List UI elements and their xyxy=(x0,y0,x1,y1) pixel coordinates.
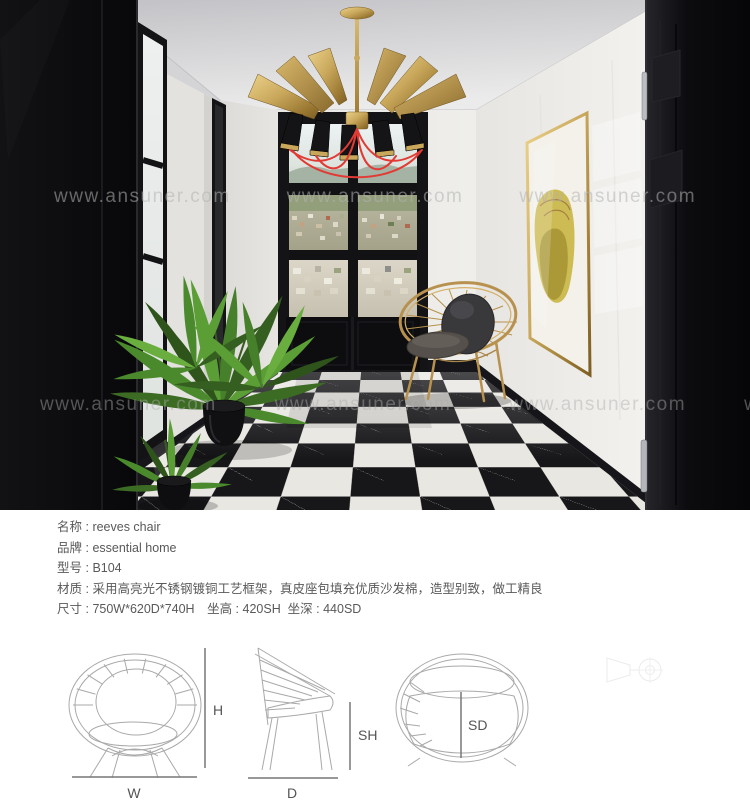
field-value: 750W*620D*740H 坐高 : 420SH 坐深 : 440SD xyxy=(92,602,361,616)
wall-art xyxy=(527,113,590,375)
depth-label: D xyxy=(287,785,297,801)
room-photo: www.ansuner.com www.ansuner.com www.ansu… xyxy=(0,0,750,510)
model-row: 型号 : B104 xyxy=(57,558,542,579)
diagrams-svg: W H D SH xyxy=(0,630,750,810)
door-hinge-bottom xyxy=(641,440,647,492)
field-value: 采用高亮光不锈钢镀铜工艺框架，真皮座包填充优质沙发棉，造型别致，做工精良 xyxy=(92,582,542,596)
cone-icon xyxy=(607,658,630,682)
door-hinge-top xyxy=(642,72,647,120)
left-door xyxy=(0,0,138,510)
seat-height-label: SH xyxy=(358,727,377,743)
dimension-diagrams: W H D SH xyxy=(0,630,750,810)
field-value: reeves chair xyxy=(92,520,160,534)
faint-cad-icons xyxy=(607,657,663,683)
product-page: www.ansuner.com www.ansuner.com www.ansu… xyxy=(0,0,750,810)
chandelier-stem xyxy=(355,15,359,115)
side-view-dimensions xyxy=(248,702,350,778)
chair-shadow xyxy=(399,393,511,409)
front-view-drawing xyxy=(69,654,201,778)
top-view-drawing xyxy=(396,654,528,766)
right-door xyxy=(641,0,750,510)
ceiling-canopy xyxy=(340,7,374,19)
brand-row: 品牌 : essential home xyxy=(57,538,542,559)
field-label: 材质 xyxy=(57,582,82,596)
material-row: 材质 : 采用高亮光不锈钢镀铜工艺框架，真皮座包填充优质沙发棉，造型别致，做工精… xyxy=(57,579,542,600)
field-value: B104 xyxy=(92,561,121,575)
size-row: 尺寸 : 750W*620D*740H 坐高 : 420SH 坐深 : 440S… xyxy=(57,599,542,620)
seat-depth-label: SD xyxy=(468,717,487,733)
room-scene xyxy=(0,0,750,510)
product-name-row: 名称 : reeves chair xyxy=(57,517,542,538)
field-label: 型号 xyxy=(57,561,82,575)
field-value: essential home xyxy=(92,541,176,555)
height-label: H xyxy=(213,702,223,718)
product-info: 名称 : reeves chair 品牌 : essential home 型号… xyxy=(57,517,542,620)
field-label: 尺寸 xyxy=(57,602,82,616)
field-label: 品牌 xyxy=(57,541,82,555)
field-label: 名称 xyxy=(57,520,82,534)
side-view-drawing xyxy=(255,648,335,770)
wall-light-reflections xyxy=(592,112,643,314)
front-view-dimensions xyxy=(72,648,205,777)
width-label: W xyxy=(127,785,141,801)
